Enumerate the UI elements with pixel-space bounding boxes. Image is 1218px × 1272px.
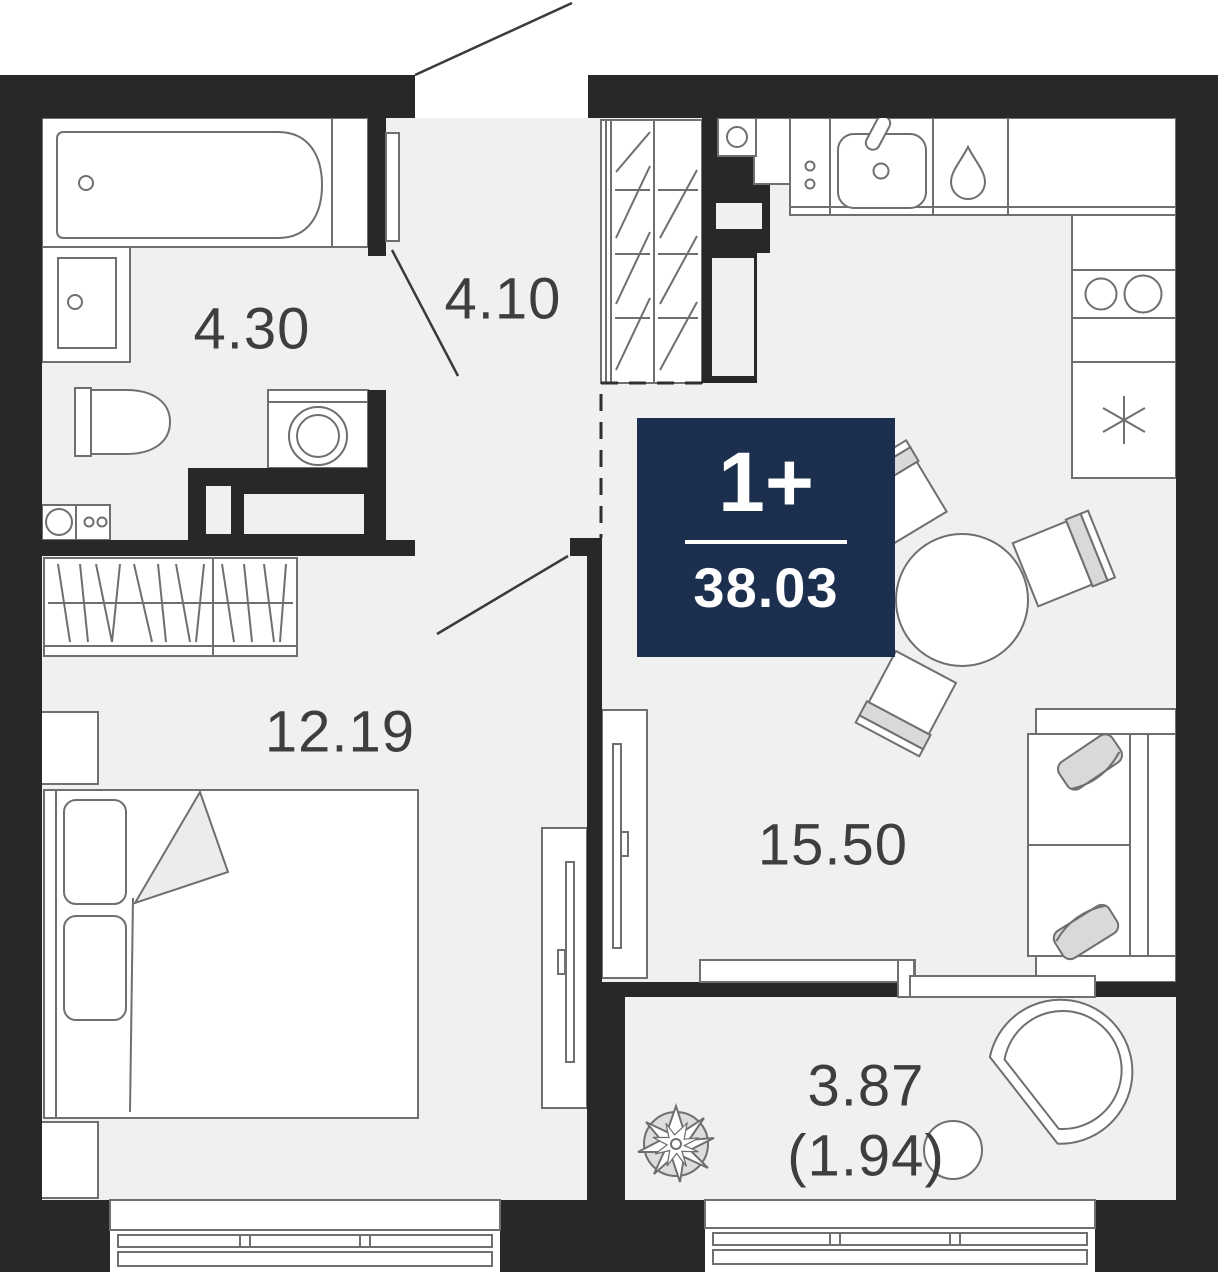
kitchen-cabinet: [1072, 215, 1176, 270]
kitchen-right-units: [1072, 215, 1176, 478]
bed-pillow: [64, 800, 126, 904]
hall-wardrobe-icon: [601, 120, 702, 383]
wall-bottom-middle: [500, 1200, 705, 1272]
nightstand: [36, 712, 98, 784]
tv-console-bedroom: [542, 828, 587, 1108]
stove-icon: [1072, 270, 1176, 318]
entrance-door-swing: [415, 3, 572, 75]
tv-console-living: [602, 710, 647, 978]
balcony-window: [705, 1200, 1095, 1264]
wall-top-right: [588, 75, 1218, 118]
kitchen-living-area-label: 15.50: [758, 812, 908, 879]
dining-table-icon: [896, 534, 1028, 666]
wall-bedroom-living: [587, 556, 602, 997]
kitchen-counter: [790, 114, 1176, 215]
wall-bath-door-pier: [368, 118, 386, 256]
bedroom-wardrobe-icon: [44, 558, 297, 656]
badge-total-area: 38.03: [693, 560, 838, 616]
fridge-icon: [1072, 362, 1176, 478]
toilet-icon: [75, 388, 170, 456]
nightstand: [36, 1122, 98, 1198]
wall-bottom-right: [1095, 1200, 1218, 1272]
wall-bath-niche: [188, 468, 386, 540]
balcony-reduced-area-label: (1.94): [787, 1123, 945, 1190]
counter-knob-icon: [806, 180, 815, 189]
floorplan-canvas: 4.30 4.10 12.19 15.50 3.87 (1.94) 1+ 38.…: [0, 0, 1218, 1272]
bathtub-icon: [42, 118, 368, 247]
kitchen-cabinet: [1072, 318, 1176, 362]
bathroom-door-leaf: [386, 133, 399, 241]
washing-machine-icon: [268, 390, 368, 468]
wall-bath-bedroom: [0, 540, 415, 556]
badge-divider: [685, 540, 847, 544]
wall-right: [1176, 75, 1218, 1272]
bedroom-area-label: 12.19: [265, 699, 415, 766]
floorplan-drawing: [0, 0, 1218, 1272]
bed-icon: [44, 790, 418, 1118]
wall-balcony-left: [587, 997, 625, 1200]
bedroom-window: [110, 1200, 500, 1266]
bed-headboard: [44, 790, 56, 1118]
badge-rooms-count: 1+: [718, 440, 814, 524]
wall-bottom-left: [0, 1200, 110, 1272]
bathroom-sink-icon: [42, 247, 130, 362]
balcony-area-label: 3.87: [808, 1053, 925, 1120]
water-heater-icon: [42, 505, 110, 540]
wall-top-left: [0, 75, 415, 118]
counter-knob-icon: [806, 162, 815, 171]
sofa-icon: [1028, 709, 1176, 982]
bed-pillow: [64, 916, 126, 1020]
hallway-area-label: 4.10: [445, 266, 562, 333]
bathroom-area-label: 4.30: [194, 296, 311, 363]
apartment-badge: 1+ 38.03: [637, 418, 895, 657]
wall-left: [0, 75, 42, 1272]
sofa-armrest: [1036, 709, 1176, 734]
wall-bedroom-door-pier: [570, 538, 602, 556]
